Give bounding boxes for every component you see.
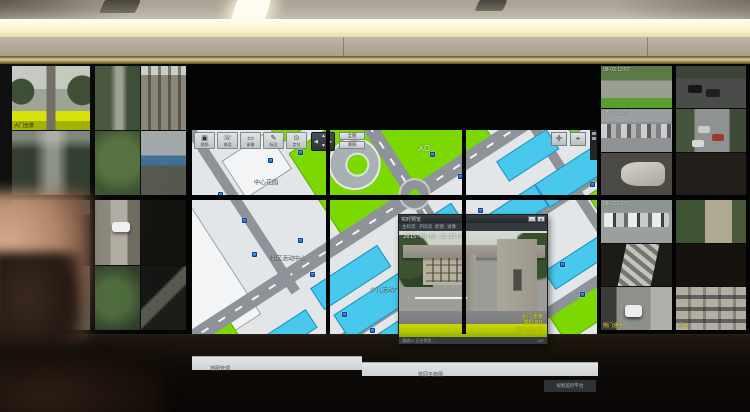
camera-marker-icon[interactable] bbox=[580, 292, 585, 297]
camera-tile[interactable] bbox=[676, 200, 748, 243]
camera-panel-L2 bbox=[95, 66, 186, 195]
camera-panel-R2 bbox=[676, 66, 748, 195]
map-label: 入口 bbox=[418, 144, 430, 153]
map-status-left-label: 地图管理 bbox=[210, 366, 230, 372]
ceiling-light-panel bbox=[231, 0, 271, 20]
camera-marker-icon[interactable] bbox=[298, 238, 303, 243]
map-label: 社区活动中心 bbox=[270, 254, 306, 263]
toolbar-label: 电话 bbox=[224, 142, 232, 147]
toolbar-label: 定位 bbox=[293, 142, 301, 147]
toolbar-icon: ☏ bbox=[223, 135, 232, 142]
hand-silhouette bbox=[0, 345, 166, 412]
pan-left-icon[interactable]: ◀ bbox=[314, 140, 318, 145]
map-statusbar-right: 校园平面图 bbox=[362, 362, 598, 376]
fascia-panel bbox=[0, 37, 750, 57]
camera-panel-L4 bbox=[95, 200, 186, 330]
camera-marker-icon[interactable] bbox=[310, 272, 315, 277]
camera-tile[interactable] bbox=[676, 244, 748, 287]
map-right-buttons: ✛⌖ bbox=[551, 132, 586, 146]
clear-button[interactable]: 清除 bbox=[339, 141, 365, 149]
camera-tile[interactable] bbox=[95, 200, 140, 265]
popup-toolbar-item[interactable]: 录像 bbox=[447, 223, 456, 231]
ceiling-vent bbox=[99, 0, 141, 13]
popup-toolbar-item[interactable]: 抓图 bbox=[435, 223, 444, 231]
video-timestamp: 2015-08-03 12:57:03 bbox=[403, 234, 466, 240]
pan-control[interactable]: ▲ ▼ ◀ ▶ bbox=[311, 132, 335, 151]
camera-tile[interactable] bbox=[95, 131, 140, 195]
camera-name-overlay: 大门 全景 球机 001 东门 出入口 bbox=[517, 314, 543, 334]
map-statusbar-left: 地图管理 bbox=[192, 356, 362, 370]
camera-tile[interactable] bbox=[676, 153, 748, 195]
popup-video-feed: 2015-08-03 12:57:03 大门 全景 球机 001 东门 出入口 bbox=[399, 231, 547, 337]
tile-timestamp: 08-03 12:57 bbox=[603, 201, 630, 207]
map-nav-button-1[interactable]: ⌖ bbox=[570, 132, 586, 146]
toolbar-button-2[interactable]: ▭录像 bbox=[240, 132, 261, 149]
camera-panel-R4: 后巷 bbox=[676, 200, 748, 330]
camera-tile[interactable] bbox=[141, 200, 186, 265]
camera-marker-icon[interactable] bbox=[342, 312, 347, 317]
popup-status-right: CIF bbox=[538, 338, 544, 343]
toolbar-button-1[interactable]: ☏电话 bbox=[217, 132, 238, 149]
camera-tile[interactable] bbox=[141, 66, 186, 130]
video-fence bbox=[415, 297, 467, 311]
toolbar-icon: ✎ bbox=[271, 135, 277, 142]
camera-tile[interactable]: 大门全景 bbox=[12, 66, 90, 130]
map-label: 中心花园 bbox=[254, 178, 278, 187]
map-toolbar-buttons: ▣视频☏电话▭录像✎标注⊙定位 bbox=[194, 132, 307, 149]
camera-marker-icon[interactable] bbox=[242, 218, 247, 223]
map-toolbar: ▣视频☏电话▭录像✎标注⊙定位 ▲ ▼ ◀ ▶ 全图 清除 bbox=[192, 130, 365, 156]
ceiling-vent bbox=[475, 0, 508, 11]
camera-tile[interactable]: 08-03 12:57 bbox=[601, 109, 672, 151]
cove-light-strip bbox=[0, 19, 750, 37]
popup-statusbar: 通道01 正在预览… CIF bbox=[399, 337, 547, 344]
close-icon[interactable]: ✕ bbox=[537, 216, 545, 222]
ceiling bbox=[0, 0, 750, 64]
toolbar-button-4[interactable]: ⊙定位 bbox=[286, 132, 307, 149]
minimize-icon[interactable]: ▫ bbox=[528, 216, 536, 222]
full-extent-button[interactable]: 全图 bbox=[339, 132, 365, 140]
overlay-line: 东门 出入口 bbox=[517, 327, 543, 334]
control-room-photo: 社区活动中心少儿活动广场中心花园入口运动场 ▣视频☏电话▭录像✎标注⊙定位 ▲ … bbox=[0, 0, 750, 412]
popup-toolbar: 主码流子码流抓图录像 bbox=[399, 223, 547, 231]
tile-label: 后巷 bbox=[678, 322, 688, 329]
popup-titlebar[interactable]: 实时预览 ▫ ✕ bbox=[399, 215, 547, 223]
fascia-seam bbox=[647, 37, 648, 57]
camera-tile[interactable] bbox=[676, 109, 748, 151]
fascia-seam bbox=[343, 37, 344, 57]
camera-tile[interactable] bbox=[676, 66, 748, 108]
toolbar-label: 标注 bbox=[270, 142, 278, 147]
camera-tile[interactable] bbox=[141, 131, 186, 195]
camera-tile[interactable] bbox=[95, 66, 140, 130]
video-wall: 社区活动中心少儿活动广场中心花园入口运动场 ▣视频☏电话▭录像✎标注⊙定位 ▲ … bbox=[0, 64, 750, 334]
popup-status-left: 通道01 正在预览… bbox=[402, 338, 538, 344]
toolbar-button-3[interactable]: ✎标注 bbox=[263, 132, 284, 149]
camera-marker-icon[interactable] bbox=[560, 262, 565, 267]
toolbar-label: 视频 bbox=[201, 142, 209, 147]
camera-panel-R1: 08-03 12:5708-03 12:57 bbox=[601, 66, 672, 195]
toolbar-icon: ▣ bbox=[201, 135, 208, 142]
taskbar-chip[interactable]: 视频监控平台 bbox=[544, 380, 596, 392]
camera-panel-R3: 08-03 12:57侧门通道 bbox=[601, 200, 672, 330]
camera-marker-icon[interactable] bbox=[478, 208, 483, 213]
camera-marker-icon[interactable] bbox=[590, 182, 595, 187]
camera-tile[interactable]: 后巷 bbox=[676, 287, 748, 330]
camera-tile[interactable] bbox=[141, 266, 186, 331]
camera-tile[interactable] bbox=[601, 153, 672, 195]
popup-toolbar-item[interactable]: 主码流 bbox=[402, 223, 416, 231]
camera-tile[interactable] bbox=[601, 244, 672, 287]
map-status-right-label: 校园平面图 bbox=[418, 372, 443, 378]
camera-tile[interactable] bbox=[95, 266, 140, 331]
toolbar-label: 录像 bbox=[247, 142, 255, 147]
popup-toolbar-item[interactable]: 子码流 bbox=[419, 223, 433, 231]
camera-marker-icon[interactable] bbox=[268, 158, 273, 163]
tile-label: 侧门通道 bbox=[603, 322, 623, 329]
camera-tile[interactable]: 08-03 12:57 bbox=[601, 66, 672, 108]
camera-marker-icon[interactable] bbox=[370, 328, 375, 333]
camera-marker-icon[interactable] bbox=[430, 152, 435, 157]
video-popup-window[interactable]: 实时预览 ▫ ✕ 主码流子码流抓图录像 2015-08-03 12: bbox=[398, 214, 548, 344]
gold-frame-trim bbox=[0, 56, 750, 64]
camera-marker-icon[interactable] bbox=[252, 252, 257, 257]
camera-tile[interactable]: 侧门通道 bbox=[601, 287, 672, 330]
camera-tile[interactable]: 08-03 12:57 bbox=[601, 200, 672, 243]
tile-label: 大门全景 bbox=[14, 122, 34, 129]
toolbar-button-0[interactable]: ▣视频 bbox=[194, 132, 215, 149]
camera-panel-L1: 大门全景 bbox=[12, 66, 90, 195]
toolbar-icon: ▭ bbox=[247, 135, 254, 142]
camera-tile[interactable] bbox=[12, 131, 90, 195]
map-nav-button-0[interactable]: ✛ bbox=[551, 132, 567, 146]
bezel bbox=[10, 195, 750, 200]
tile-timestamp: 08-03 12:57 bbox=[603, 67, 630, 73]
toolbar-icon: ⊙ bbox=[294, 135, 300, 142]
tile-timestamp: 08-03 12:57 bbox=[603, 110, 630, 116]
